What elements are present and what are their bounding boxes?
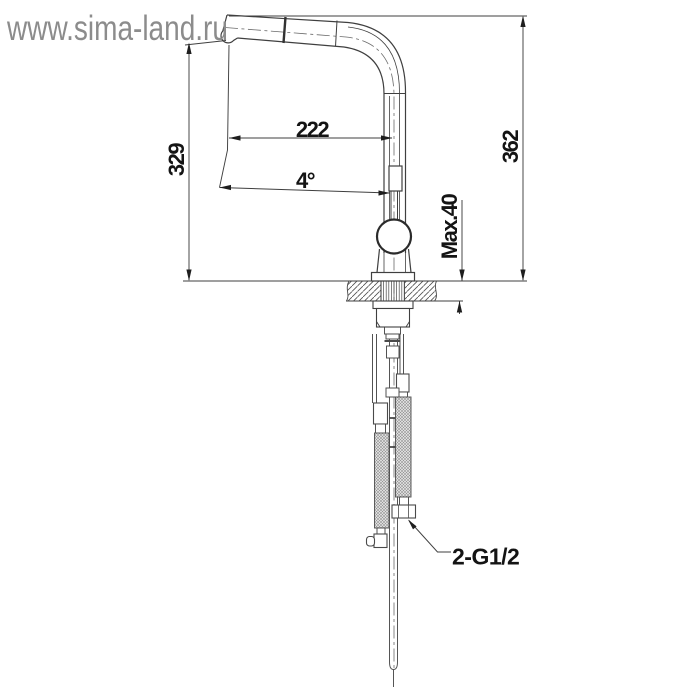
ext-line-spout-tip bbox=[220, 45, 230, 188]
faucet-technical-drawing bbox=[0, 0, 700, 700]
lever-grip bbox=[389, 166, 402, 191]
spout-joint bbox=[336, 21, 338, 47]
mounting-hardware bbox=[373, 301, 413, 327]
braided-hose bbox=[396, 397, 412, 497]
mounting-washer bbox=[373, 301, 413, 309]
dim-total-height-label: 362 bbox=[500, 131, 522, 163]
g12-fitting-left bbox=[374, 534, 387, 548]
technical-drawing-page: www.sima-land.ru 222 4° 329 362 Max.40 2… bbox=[0, 0, 700, 700]
base-flange bbox=[372, 273, 415, 282]
dim-spout-height-label: 329 bbox=[166, 144, 188, 176]
mounting-nut bbox=[377, 309, 410, 328]
dimension-arrows bbox=[186, 16, 525, 530]
hose-coupling bbox=[387, 346, 400, 358]
braided-hose bbox=[375, 433, 390, 528]
lever-handle bbox=[389, 166, 402, 220]
ball-joint bbox=[377, 220, 411, 254]
dim-connection-thread-label: 2-G1/2 bbox=[452, 546, 519, 569]
countertop bbox=[183, 281, 527, 301]
hose-fitting bbox=[374, 403, 388, 424]
threaded-shank bbox=[381, 281, 404, 301]
hose-coupling bbox=[386, 388, 399, 397]
spout-inner-edge bbox=[238, 38, 385, 253]
dim-max-counter-thickness-label: Max.40 bbox=[439, 195, 461, 259]
spout-joint bbox=[284, 17, 286, 43]
dim-spout-angle-label: 4° bbox=[296, 170, 314, 192]
dim-spout-reach-label: 222 bbox=[296, 119, 328, 141]
supply-hose-right bbox=[392, 334, 416, 518]
g12-fitting-right bbox=[392, 505, 416, 518]
watermark: www.sima-land.ru bbox=[7, 11, 228, 48]
leader-line bbox=[409, 521, 451, 553]
supply-hose-left bbox=[367, 334, 390, 548]
